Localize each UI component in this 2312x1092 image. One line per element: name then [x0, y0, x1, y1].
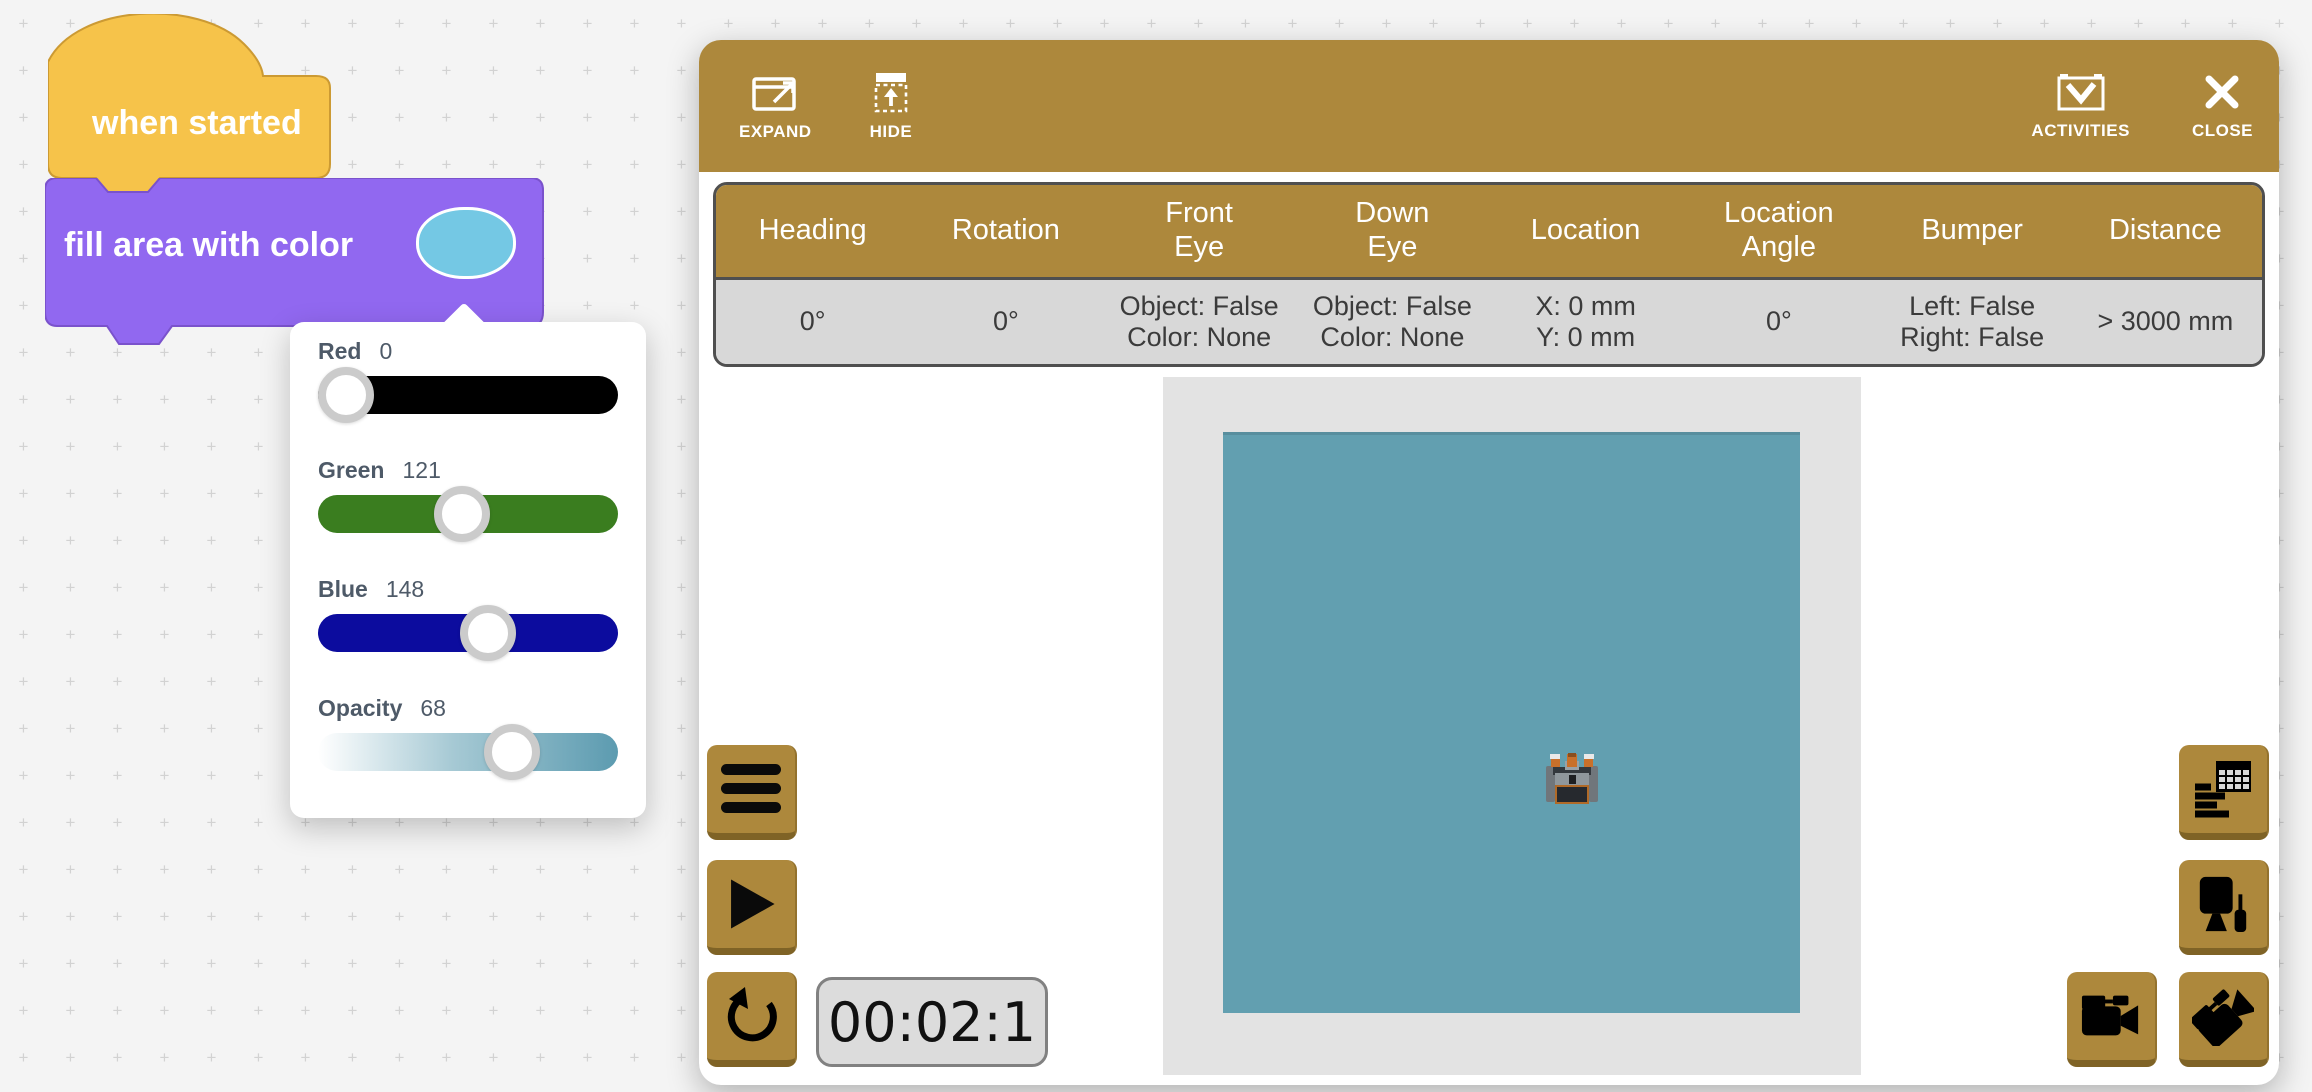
- sensor-value: X: 0 mmY: 0 mm: [1489, 280, 1682, 364]
- sensor-table-header: HeadingRotationFrontEyeDownEyeLocationLo…: [716, 185, 2262, 277]
- column-header: Location: [1489, 185, 1682, 277]
- robot-view-button[interactable]: [2179, 860, 2269, 955]
- camera-icon: [2080, 990, 2142, 1042]
- sensor-table-row: 0°0°Object: FalseColor: NoneObject: Fals…: [716, 277, 2262, 364]
- slider-label: Blue: [318, 576, 368, 603]
- painted-area: [1223, 432, 1800, 1013]
- reset-button[interactable]: [707, 972, 797, 1067]
- camera-angle-button[interactable]: [2179, 972, 2269, 1067]
- camera-top-button[interactable]: [2067, 972, 2157, 1067]
- robot: [1545, 753, 1599, 809]
- panel-toolbar: EXPAND HIDE: [699, 40, 2279, 172]
- slider-label: Green: [318, 457, 384, 484]
- column-header: LocationAngle: [1682, 185, 1875, 277]
- when-started-label: when started: [92, 104, 302, 143]
- column-header: DownEye: [1296, 185, 1489, 277]
- color-swatch[interactable]: [416, 207, 516, 279]
- close-button[interactable]: CLOSE: [2192, 72, 2253, 141]
- menu-button[interactable]: [707, 745, 797, 840]
- slider-label: Red: [318, 338, 361, 365]
- hide-icon: [870, 71, 912, 113]
- slider-label: Opacity: [318, 695, 402, 722]
- hide-label: HIDE: [870, 122, 913, 142]
- color-picker-popup: Red0Green121Blue148Opacity68: [290, 322, 646, 818]
- fill-area-label: fill area with color: [64, 226, 353, 265]
- sensor-dashboard-button[interactable]: [2179, 745, 2269, 840]
- expand-label: EXPAND: [739, 122, 812, 142]
- reset-icon: [721, 986, 781, 1046]
- simulation-panel: EXPAND HIDE: [699, 40, 2279, 1085]
- expand-icon: [752, 71, 798, 113]
- monitor-icon: [2194, 874, 2252, 934]
- close-icon: [2202, 72, 2242, 112]
- slider-handle[interactable]: [318, 367, 374, 423]
- camera-tilt-icon: [2192, 986, 2254, 1046]
- slider-value: 68: [420, 695, 446, 722]
- hide-button[interactable]: HIDE: [870, 71, 913, 142]
- slider-value: 0: [379, 338, 392, 365]
- sensor-value: 0°: [909, 280, 1102, 364]
- expand-button[interactable]: EXPAND: [739, 71, 812, 142]
- activities-button[interactable]: ACTIVITIES: [2031, 72, 2130, 141]
- sensor-value: Object: FalseColor: None: [1103, 280, 1296, 364]
- play-icon: [722, 873, 780, 935]
- slider-opacity: Opacity68: [318, 695, 618, 807]
- column-header: Rotation: [909, 185, 1102, 277]
- column-header: FrontEye: [1103, 185, 1296, 277]
- activities-icon: [2056, 72, 2106, 112]
- timer-display: 00:02:1: [816, 977, 1048, 1067]
- sensor-value: > 3000 mm: [2069, 280, 2262, 364]
- sensor-table: HeadingRotationFrontEyeDownEyeLocationLo…: [713, 182, 2265, 367]
- slider-value: 148: [386, 576, 424, 603]
- slider-green: Green121: [318, 457, 618, 569]
- column-header: Distance: [2069, 185, 2262, 277]
- sensor-value: Left: FalseRight: False: [1876, 280, 2069, 364]
- slider-value: 121: [402, 457, 440, 484]
- simulation-field: [1163, 377, 1861, 1075]
- column-header: Bumper: [1876, 185, 2069, 277]
- app-stage: ++++++++++++++++++++++++++++++++++++++++…: [0, 0, 2312, 1092]
- slider-track[interactable]: [318, 733, 618, 771]
- slider-handle[interactable]: [434, 486, 490, 542]
- slider-handle[interactable]: [460, 605, 516, 661]
- slider-blue: Blue148: [318, 576, 618, 688]
- sensor-value: Object: FalseColor: None: [1296, 280, 1489, 364]
- sensor-value: 0°: [716, 280, 909, 364]
- slider-red: Red0: [318, 338, 618, 450]
- menu-icon: [720, 761, 782, 817]
- data-table-icon: [2193, 759, 2253, 819]
- column-header: Heading: [716, 185, 909, 277]
- play-button[interactable]: [707, 860, 797, 955]
- slider-handle[interactable]: [484, 724, 540, 780]
- close-label: CLOSE: [2192, 121, 2253, 141]
- sensor-value: 0°: [1682, 280, 1875, 364]
- activities-label: ACTIVITIES: [2031, 121, 2130, 141]
